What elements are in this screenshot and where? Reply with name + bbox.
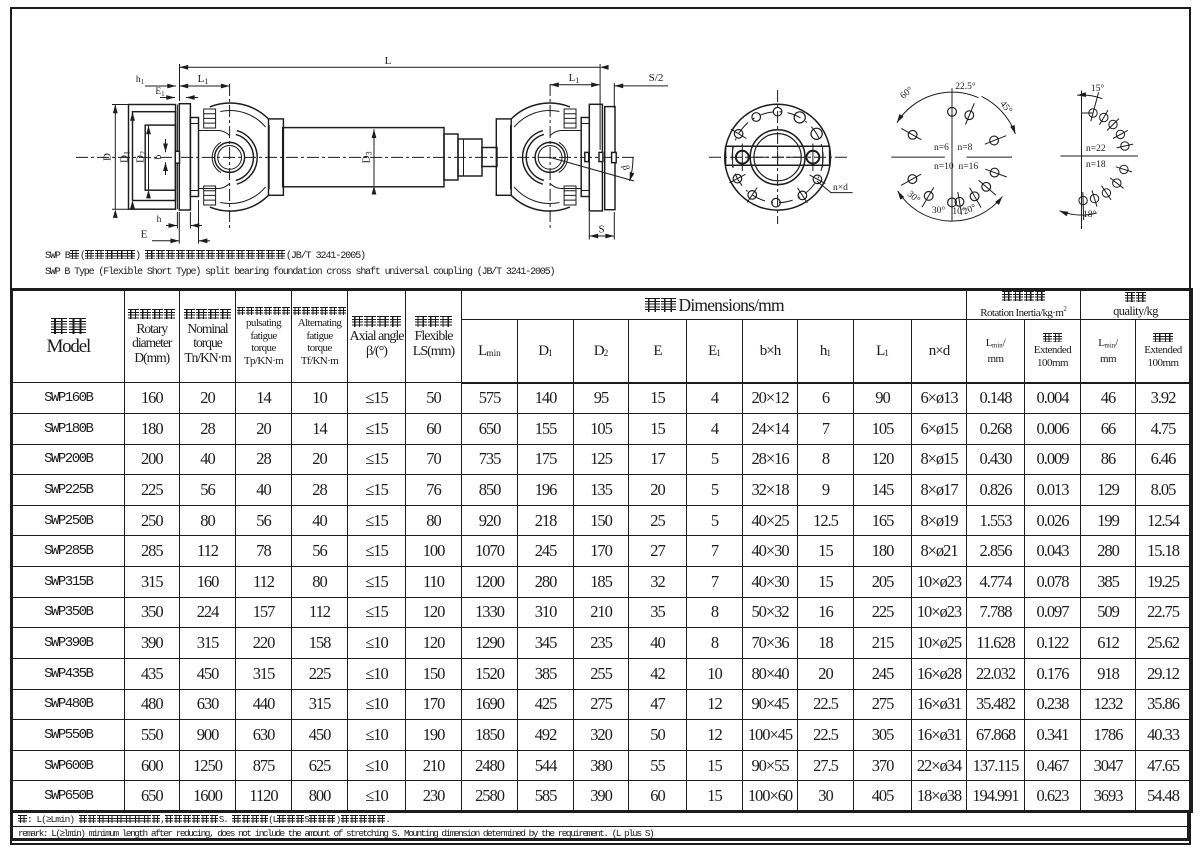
svg-text:E: E: [141, 229, 148, 241]
svg-text:22.5°: 22.5°: [955, 81, 976, 92]
svg-text:15°: 15°: [1091, 83, 1105, 94]
svg-text:D3: D3: [361, 151, 374, 163]
svg-text:D: D: [102, 153, 114, 161]
svg-text:20°: 20°: [961, 202, 978, 217]
svg-text:L: L: [385, 55, 392, 67]
svg-text:n=22: n=22: [1086, 144, 1106, 154]
svg-text:30°: 30°: [932, 205, 946, 216]
svg-text:n=18: n=18: [1086, 160, 1106, 170]
svg-text:S: S: [598, 224, 604, 236]
svg-text:h: h: [157, 215, 162, 225]
svg-text:L1: L1: [569, 72, 580, 85]
svg-text:L1: L1: [198, 73, 209, 86]
svg-text:D1: D1: [119, 151, 132, 163]
svg-text:18°: 18°: [1083, 209, 1097, 220]
svg-text:45°: 45°: [997, 99, 1014, 116]
svg-text:h1: h1: [136, 75, 145, 86]
svg-text:b: b: [154, 154, 164, 159]
svg-text:n=16: n=16: [959, 162, 979, 172]
svg-text:β: β: [620, 164, 631, 171]
svg-text:n×d: n×d: [833, 183, 848, 193]
svg-text:E1: E1: [155, 87, 165, 98]
svg-text:n=6: n=6: [934, 143, 949, 153]
svg-text:n=8: n=8: [958, 143, 973, 153]
svg-text:60°: 60°: [898, 84, 915, 101]
svg-text:n=10: n=10: [934, 162, 954, 172]
svg-text:D2: D2: [135, 151, 148, 163]
svg-text:S/2: S/2: [649, 72, 664, 84]
